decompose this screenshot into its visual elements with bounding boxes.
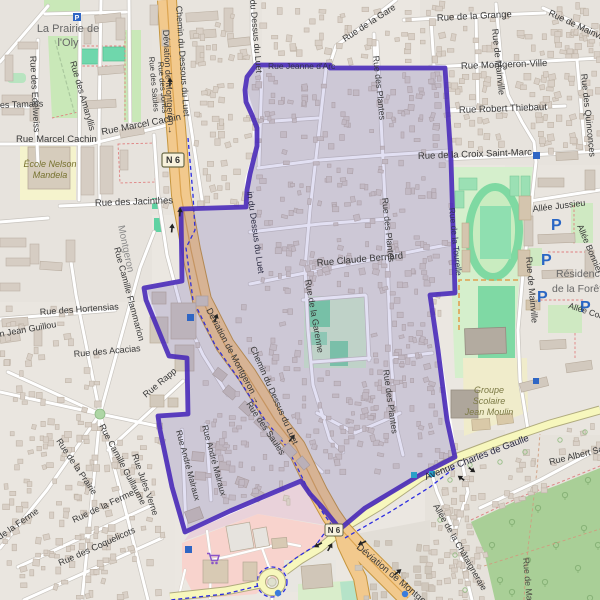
- svg-text:N 6: N 6: [166, 155, 180, 165]
- svg-text:La Prairie de: La Prairie de: [37, 23, 99, 35]
- svg-text:Résidence: Résidence: [556, 268, 600, 280]
- svg-text:l'Oly: l'Oly: [57, 37, 79, 49]
- svg-text:Scolaire: Scolaire: [473, 396, 506, 406]
- svg-text:de la Forêt: de la Forêt: [552, 283, 600, 295]
- svg-text:École Nelson: École Nelson: [23, 159, 76, 169]
- svg-text:P: P: [75, 15, 80, 22]
- svg-text:Rue Jeanne d'Arc: Rue Jeanne d'Arc: [268, 61, 336, 71]
- svg-text:P: P: [541, 252, 552, 269]
- svg-text:Groupe: Groupe: [474, 385, 504, 395]
- svg-text:Rue Marcel Cachin: Rue Marcel Cachin: [16, 134, 97, 145]
- svg-text:Mandela: Mandela: [33, 170, 68, 180]
- svg-text:P: P: [551, 217, 562, 234]
- svg-text:N 6: N 6: [328, 526, 341, 535]
- svg-text:Jean Moulin: Jean Moulin: [464, 407, 514, 417]
- svg-text:es Tamaris: es Tamaris: [0, 98, 44, 110]
